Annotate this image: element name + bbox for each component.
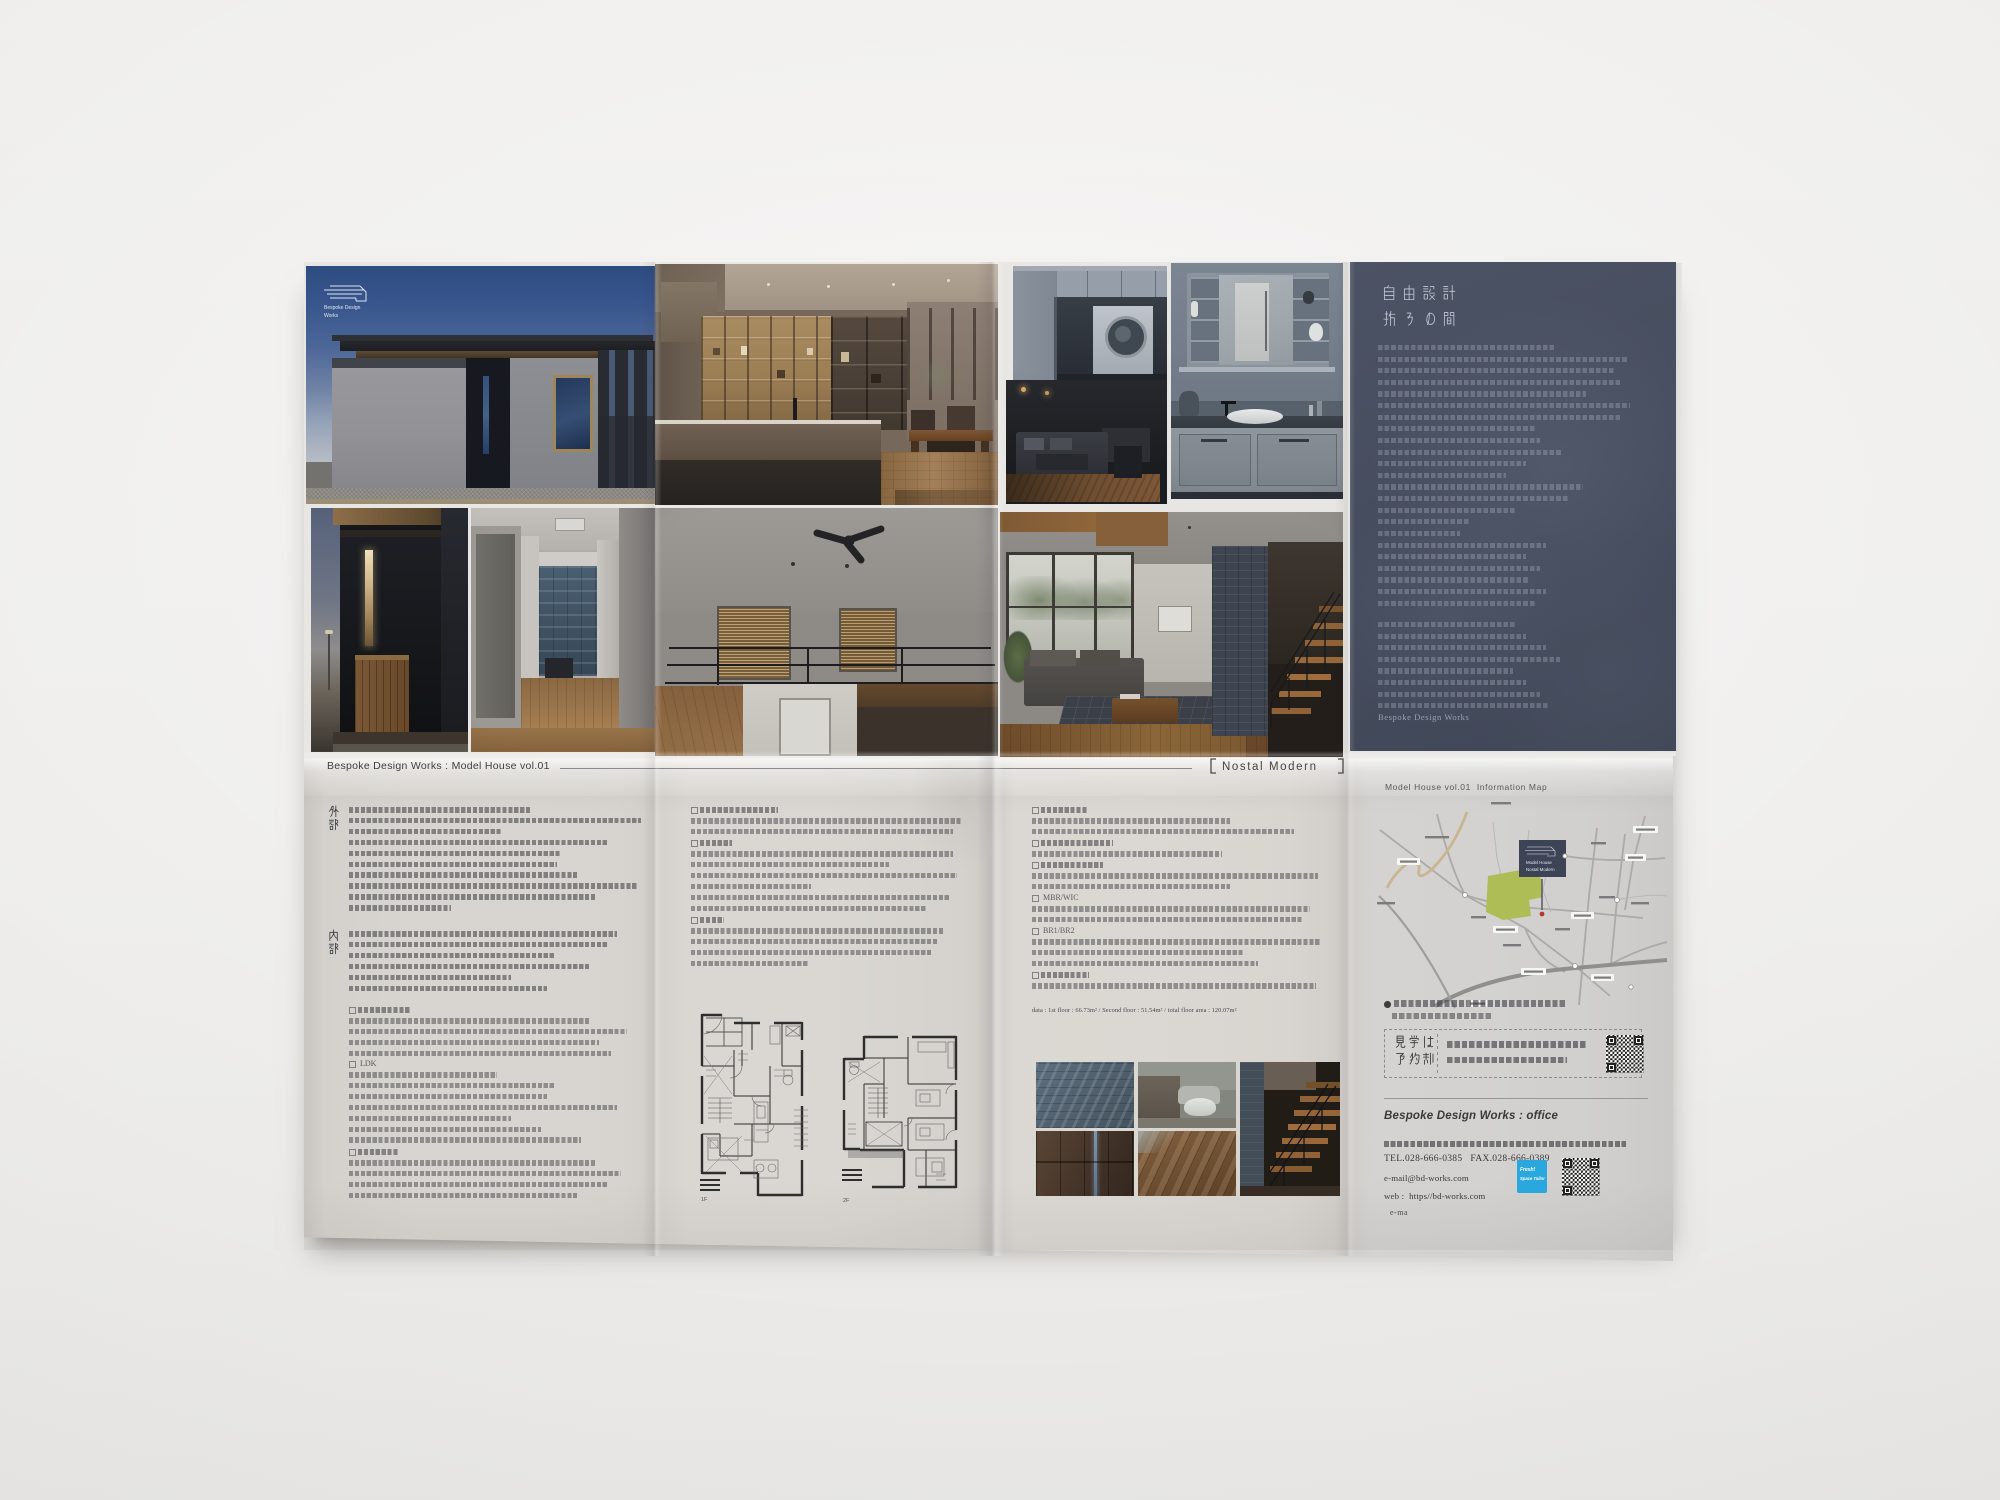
- svg-text:1F: 1F: [701, 1197, 708, 1202]
- svg-text:Model House: Model House: [1526, 860, 1552, 865]
- svg-text:Nostal Modern: Nostal Modern: [1222, 761, 1318, 773]
- svg-text:Nostal Modern: Nostal Modern: [1526, 867, 1555, 872]
- svg-text:2F: 2F: [843, 1198, 850, 1204]
- svg-text:Works: Works: [324, 313, 339, 319]
- svg-text:Bespoke Design: Bespoke Design: [324, 305, 361, 311]
